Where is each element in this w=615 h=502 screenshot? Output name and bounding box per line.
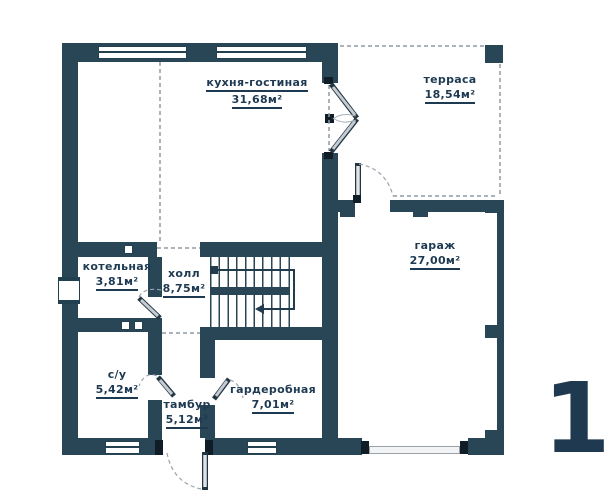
room-label-vestibule: тамбур 5,12м² xyxy=(152,398,222,429)
room-area-text: 5,12м² xyxy=(166,413,209,429)
room-name: кухня-гостиная xyxy=(182,76,332,92)
room-area-text: 8,75м² xyxy=(163,282,206,298)
room-area: 5,12м² xyxy=(152,413,222,429)
room-label-garage: гараж 27,00м² xyxy=(385,239,485,270)
room-area-text: 7,01м² xyxy=(252,398,295,414)
french-door-arcs xyxy=(333,115,356,123)
room-area-text: 27,00м² xyxy=(410,254,461,270)
boiler-door-leaf-fill xyxy=(141,300,158,316)
french-door-leaf-bottom-fill xyxy=(333,121,355,149)
room-area-text: 5,42м² xyxy=(96,383,139,399)
french-arc-top xyxy=(333,115,356,119)
room-area: 27,00м² xyxy=(385,254,485,270)
room-label-wardrobe: гардеробная 7,01м² xyxy=(213,383,333,414)
room-area: 5,42м² xyxy=(82,383,152,399)
room-area: 7,01м² xyxy=(213,398,333,414)
door-swing-arcs xyxy=(139,164,393,489)
room-label-terrace: терраса 18,54м² xyxy=(400,73,500,104)
room-name: с/у xyxy=(82,368,152,382)
french-arc-bottom xyxy=(333,118,356,122)
room-area: 18,54м² xyxy=(400,88,500,104)
room-name: гардеробная xyxy=(213,383,333,397)
room-area-text: 18,54м² xyxy=(425,88,476,104)
room-name: холл xyxy=(152,267,216,281)
room-label-bathroom: с/у 5,42м² xyxy=(82,368,152,399)
room-name: гараж xyxy=(385,239,485,253)
french-door-leaf-top-fill xyxy=(333,87,355,115)
room-label-boiler: котельная 3,81м² xyxy=(76,260,158,291)
terrace-door-arc xyxy=(359,164,393,196)
floor-plan: кухня-гостиная 31,68м² терраса 18,54м² г… xyxy=(0,0,615,502)
room-name: терраса xyxy=(400,73,500,87)
room-label-hall: холл 8,75м² xyxy=(152,267,216,298)
room-name-text: кухня-гостиная xyxy=(206,76,307,92)
floor-number: 1 xyxy=(543,370,603,467)
room-area: 31,68м² xyxy=(182,93,332,109)
room-name: котельная xyxy=(76,260,158,274)
entrance-door-arc xyxy=(167,453,201,489)
room-area-text: 31,68м² xyxy=(232,93,283,109)
terrace-door-hinge xyxy=(353,195,361,203)
room-area: 8,75м² xyxy=(152,282,216,298)
room-area: 3,81м² xyxy=(76,275,158,291)
room-name: тамбур xyxy=(152,398,222,412)
room-area-text: 3,81м² xyxy=(96,275,139,291)
room-label-kitchen-living: кухня-гостиная 31,68м² xyxy=(182,76,332,109)
bathroom-door-leaf-fill xyxy=(160,380,172,394)
